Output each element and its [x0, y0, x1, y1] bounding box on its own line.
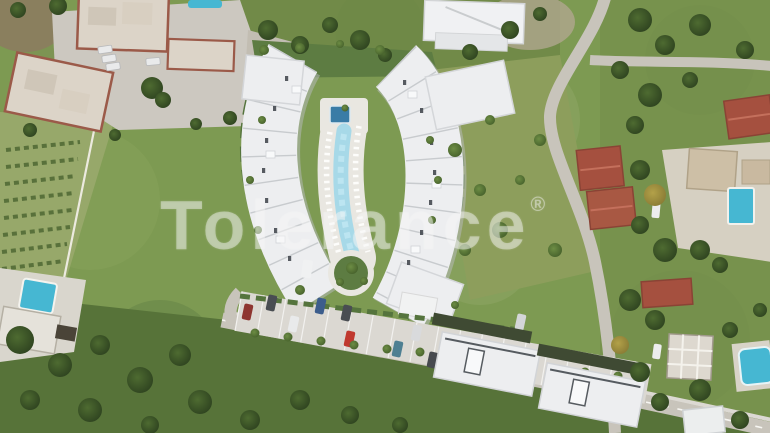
villa-under-construction [667, 334, 713, 380]
neighbor-pool-top [188, 0, 222, 8]
block-top-west [242, 55, 304, 105]
watermark: Tolerance® [160, 168, 545, 242]
villa-pool-bottom-right [738, 346, 770, 385]
villa-pool-left [19, 278, 58, 313]
villa-red-roof-bottom [641, 278, 693, 307]
apartment-building-3 [167, 39, 234, 71]
watermark-text: Tolerance [160, 186, 531, 264]
villa-red-roof-top-right [724, 95, 770, 139]
apartment-building-1 [77, 0, 169, 52]
villa-pool-right [728, 188, 754, 224]
registered-trademark-icon: ® [531, 194, 546, 216]
white-villa-bottom [683, 406, 725, 433]
aerial-photo: Tolerance® [0, 0, 770, 433]
